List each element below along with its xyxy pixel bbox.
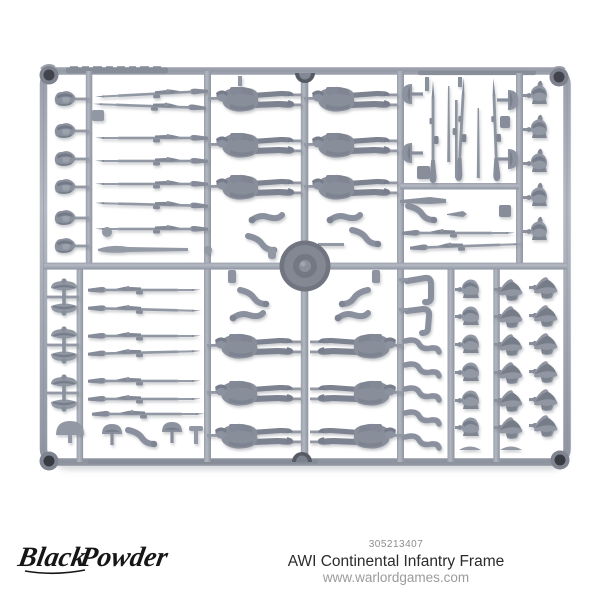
svg-text:Black: Black <box>15 542 88 573</box>
